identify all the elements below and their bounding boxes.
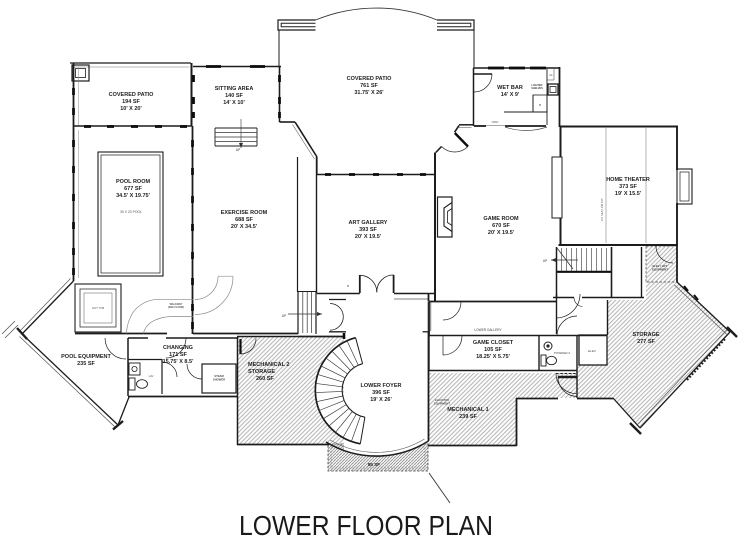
svg-text:AC: AC	[549, 74, 553, 77]
svg-text:MECHANICAL 1: MECHANICAL 1	[447, 407, 488, 413]
svg-text:ART GALLERY: ART GALLERY	[349, 220, 388, 226]
svg-text:LOWER GALLERY: LOWER GALLERY	[474, 328, 502, 332]
svg-text:STORAGE: STORAGE	[248, 369, 275, 375]
svg-text:STORAGE: STORAGE	[632, 332, 659, 338]
svg-text:393 SF: 393 SF	[359, 227, 377, 233]
svg-text:STEAM: STEAM	[214, 374, 224, 378]
svg-text:EQUIPMENT: EQUIPMENT	[434, 401, 450, 405]
svg-text:277 SF: 277 SF	[637, 339, 655, 345]
svg-text:14' X 9': 14' X 9'	[501, 92, 520, 98]
svg-text:(SEE FLOOR): (SEE FLOOR)	[168, 306, 184, 309]
svg-text:POWDER 2: POWDER 2	[554, 351, 570, 355]
svg-text:137 SEAT RM 915: 137 SEAT RM 915	[600, 198, 604, 222]
svg-text:105 SF: 105 SF	[484, 347, 502, 353]
svg-text:396 SF: 396 SF	[372, 390, 390, 396]
svg-text:20' X 19.5': 20' X 19.5'	[355, 234, 382, 240]
svg-text:ELEVATOR: ELEVATOR	[435, 398, 449, 402]
svg-text:10' X 20': 10' X 20'	[120, 106, 142, 112]
svg-text:239 SF: 239 SF	[459, 414, 477, 420]
svg-text:194 SF: 194 SF	[122, 99, 140, 105]
svg-text:SITTING AREA: SITTING AREA	[215, 86, 254, 92]
svg-text:COVERED PATIO: COVERED PATIO	[347, 76, 392, 82]
svg-text:GAME CLOSET: GAME CLOSET	[473, 340, 514, 346]
svg-text:HOME THEATER: HOME THEATER	[606, 177, 650, 183]
svg-text:260 SF: 260 SF	[256, 376, 274, 382]
svg-text:14' X 10': 14' X 10'	[223, 100, 245, 106]
svg-text:SHELVES: SHELVES	[531, 87, 543, 90]
svg-text:85 SF: 85 SF	[368, 462, 380, 467]
svg-text:ELEV: ELEV	[588, 349, 596, 353]
svg-text:UP: UP	[236, 148, 240, 152]
svg-text:LAV: LAV	[149, 374, 154, 378]
svg-text:CHANGING: CHANGING	[163, 345, 193, 351]
svg-text:18.25' X 5.75': 18.25' X 5.75'	[476, 354, 511, 360]
svg-text:31.75' X 26': 31.75' X 26'	[354, 90, 384, 96]
svg-text:670 SF: 670 SF	[492, 223, 510, 229]
svg-text:UP: UP	[282, 314, 286, 318]
svg-text:COVERED PATIO: COVERED PATIO	[109, 92, 154, 98]
svg-text:LOWER FLOOR PLAN: LOWER FLOOR PLAN	[239, 510, 493, 541]
svg-text:GAME ROOM: GAME ROOM	[483, 216, 519, 222]
svg-text:EXERCISE ROOM: EXERCISE ROOM	[221, 210, 268, 216]
svg-text:UP: UP	[543, 259, 547, 263]
svg-text:WET BAR: WET BAR	[497, 85, 523, 91]
svg-text:SHOWER: SHOWER	[213, 377, 225, 381]
svg-text:MECHANICAL 2: MECHANICAL 2	[248, 362, 289, 368]
svg-text:POOL EQUIPMENT: POOL EQUIPMENT	[61, 354, 111, 360]
svg-text:POOL ROOM: POOL ROOM	[116, 179, 151, 185]
svg-text:EQUIPMENT: EQUIPMENT	[652, 267, 668, 271]
svg-text:140 SF: 140 SF	[225, 93, 243, 99]
svg-text:20' X 34.5': 20' X 34.5'	[231, 224, 258, 230]
svg-text:677 SF: 677 SF	[124, 186, 142, 192]
svg-text:ELEV / LIFT: ELEV / LIFT	[653, 264, 668, 268]
svg-text:B: B	[539, 103, 541, 107]
svg-text:761 SF: 761 SF	[360, 83, 378, 89]
svg-text:OPEN: OPEN	[492, 121, 499, 124]
svg-text:20' X 19.5': 20' X 19.5'	[488, 230, 515, 236]
svg-text:HOT TUB: HOT TUB	[92, 306, 104, 310]
svg-text:30 X 20 POOL: 30 X 20 POOL	[120, 210, 142, 214]
svg-text:15.75' X 8.5': 15.75' X 8.5'	[163, 359, 194, 365]
svg-text:34.5' X 19.75': 34.5' X 19.75'	[116, 193, 151, 199]
svg-text:19' X 26': 19' X 26'	[370, 397, 392, 403]
svg-text:235 SF: 235 SF	[77, 361, 95, 367]
svg-text:171 SF: 171 SF	[169, 352, 187, 358]
svg-text:*: *	[347, 285, 349, 291]
svg-text:373 SF: 373 SF	[619, 184, 637, 190]
svg-text:LOWER FOYER: LOWER FOYER	[361, 383, 402, 389]
svg-text:688 SF: 688 SF	[235, 217, 253, 223]
svg-text:19' X 15.5': 19' X 15.5'	[615, 191, 642, 197]
